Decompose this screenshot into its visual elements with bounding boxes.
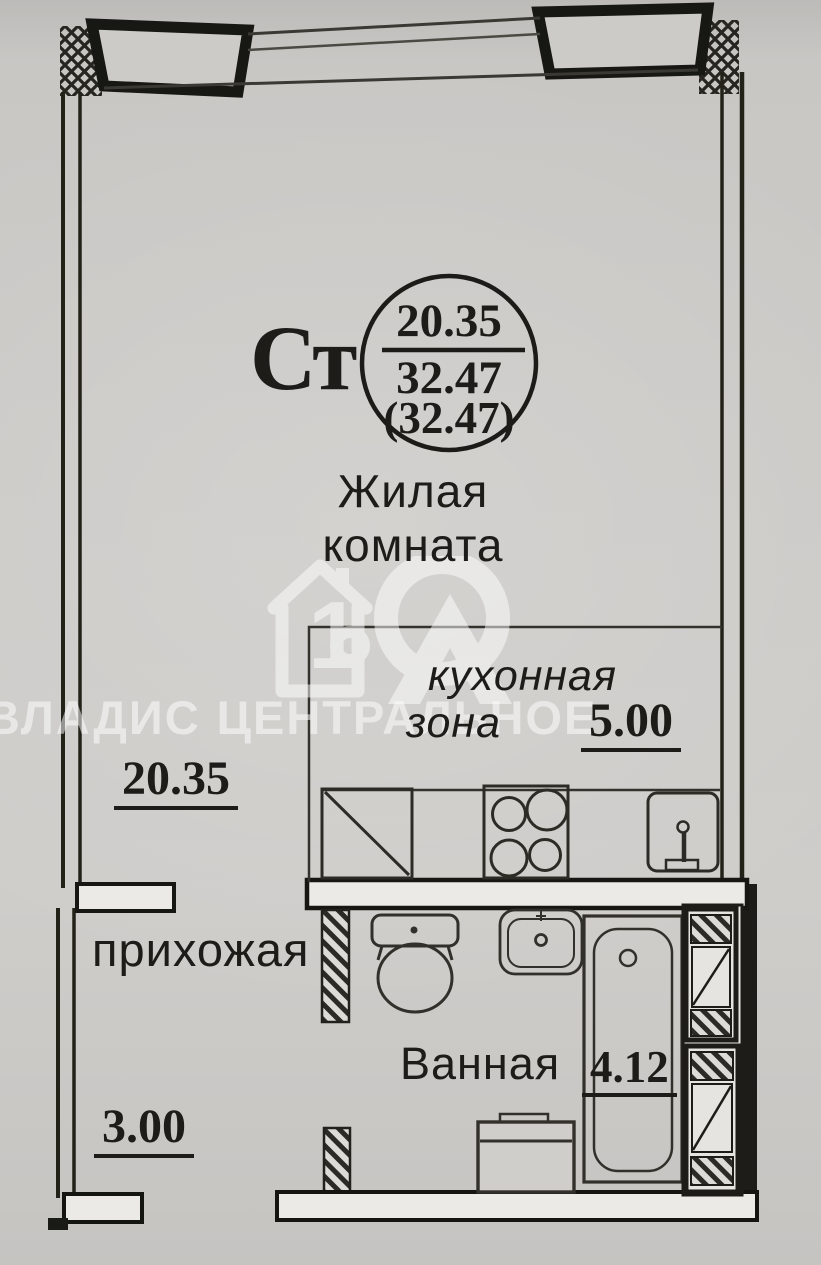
living-room-label: Жилая комната [282, 464, 544, 572]
living-room-label-line1: Жилая [282, 464, 544, 518]
hallway-label: прихожая [92, 922, 309, 977]
vent-shaft [683, 905, 742, 1195]
bath-sink-icon [500, 910, 582, 974]
toilet-icon [372, 915, 458, 1012]
washing-machine-icon [478, 1114, 574, 1192]
stamp-living-area: 20.35 [363, 298, 535, 345]
bathroom-label: Ванная [400, 1038, 560, 1090]
partition-bath-upper [322, 910, 349, 1022]
stove-icon [484, 786, 568, 878]
unit-type-label: Ст [250, 312, 354, 404]
window-pier-right [538, 8, 708, 74]
window-pier-left [92, 24, 248, 92]
counter-cabinet-icon [322, 789, 412, 878]
kitchen-sink-icon [648, 793, 718, 871]
glazing-line [248, 34, 540, 50]
wall-bottom-left [64, 1194, 142, 1222]
kitchen-area-dim: 5.00 [581, 696, 681, 752]
wall-bottom-left-cap [48, 1218, 68, 1230]
partition-bath-lower [324, 1128, 350, 1194]
wall-stub-left [77, 884, 174, 911]
floorplan-photo: 1 ВЛАДИС ЦЕНТРАЛЬНОЕ Ст 20.35 32.47 (32.… [0, 0, 821, 1265]
living-area-dim: 20.35 [114, 754, 238, 810]
hallway-area-dim: 3.00 [94, 1102, 194, 1158]
bathroom-area-dim: 4.12 [582, 1044, 677, 1097]
kitchen-zone-label-line2: зона [406, 699, 501, 748]
balcony-window [60, 8, 739, 96]
wall-kitchen-bath [307, 880, 747, 908]
wall-bathroom-right [742, 884, 757, 1198]
living-room-label-line2: комната [282, 518, 544, 572]
exterior-walls [58, 72, 757, 1198]
stamp-total-area-with-balcony: (32.47) [363, 396, 535, 441]
glazing-line [248, 18, 540, 34]
